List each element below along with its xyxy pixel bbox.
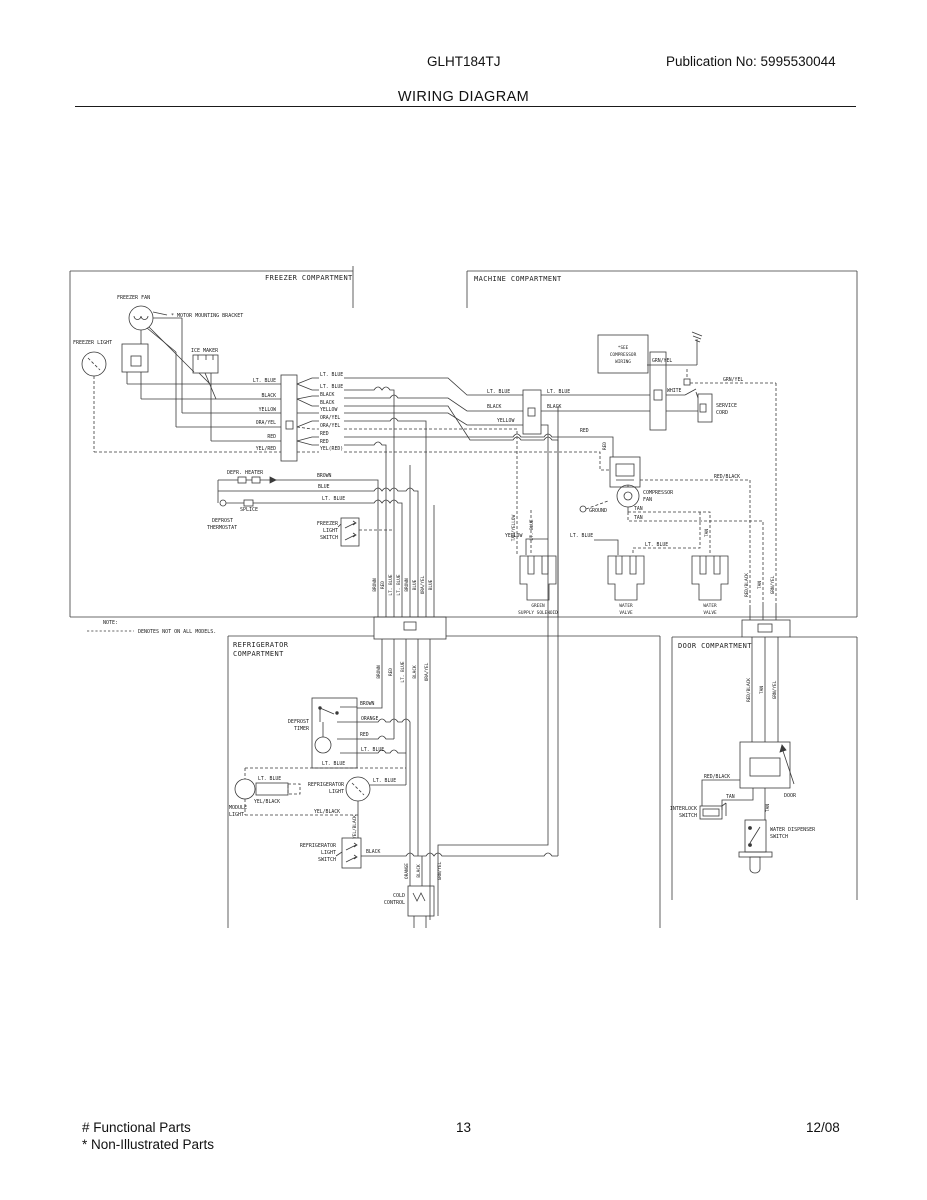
wire-label: BLACK <box>320 392 335 398</box>
wire-label: LT. BLUE <box>487 389 510 395</box>
wire-label: LT. BLUE <box>547 389 570 395</box>
wire-label: GRN/YEL <box>772 680 778 699</box>
wire-label: ORA/YEL <box>420 575 426 594</box>
refrigerator-compartment-label-1: REFRIGERATOR <box>233 641 289 649</box>
defrost-heater-symbol <box>218 477 378 617</box>
wire-label: RED <box>320 431 329 437</box>
refrigerator-connector <box>374 617 446 639</box>
wire-label: LT. BLUE <box>322 496 345 502</box>
wire-label: TAN <box>726 794 735 800</box>
wire-label: ORANGE <box>404 863 410 879</box>
wire-label: YEL/BLACK <box>314 809 340 815</box>
wire-label: RED <box>388 668 394 676</box>
wire-label: ORANGE <box>361 716 378 722</box>
wire-label: RED/BLACK <box>746 678 752 702</box>
wire-label: LT. BLUE <box>373 778 396 784</box>
wire-label: TAN <box>759 686 765 694</box>
wire-label: LT. BLUE <box>320 372 343 378</box>
ice-maker-label: ICE MAKER <box>191 348 219 354</box>
water-dispenser-switch-label-2: SWITCH <box>770 834 788 840</box>
wire-label: LT. BLUE <box>322 761 345 767</box>
wire-label: RED/BLACK <box>704 774 730 780</box>
door-wires <box>702 780 765 820</box>
compressor-fan-label-2: FAN <box>643 497 652 503</box>
wire-label: TAN <box>757 581 763 589</box>
cold-control-label-1: COLD <box>393 893 405 899</box>
defrost-timer-symbol <box>312 698 357 768</box>
freezer-light-label: FREEZER LIGHT <box>73 340 112 346</box>
wire-label: LT. BLUE <box>258 776 281 782</box>
refrigerator-light-switch-symbol <box>336 838 361 868</box>
module-light-label-2: LIGHT <box>229 812 244 818</box>
water-valve-connector-2 <box>692 556 728 600</box>
defrost-thermostat-label-1: DEFROST <box>212 518 233 524</box>
wire-label: BLACK <box>320 400 335 406</box>
wire-label: BLACK <box>262 393 277 399</box>
compressor-fan-label-1: COMPRESSOR <box>643 490 674 496</box>
freezer-light-switch-label-2: LIGHT <box>323 528 338 534</box>
freezer-light-switch-label-1: FREEZER <box>317 521 339 527</box>
footer-non-illustrated-parts: * Non-Illustrated Parts <box>82 1137 214 1152</box>
wire-label: LT. BLUE <box>396 574 402 596</box>
wire-label: GRN/YEL <box>652 358 672 364</box>
splice-label: SPLICE <box>240 507 258 513</box>
service-cord-label-1: SERVICE <box>716 403 737 409</box>
water-valve-connector-1 <box>608 556 644 600</box>
supply-solenoid-label-2: SUPPLY SOLENOID <box>518 610 558 616</box>
wire-label: YELLOW <box>497 418 514 424</box>
freezer-light-symbol <box>82 352 106 452</box>
water-valve-label-1a: WATER <box>619 603 633 609</box>
wire-label: BROWN <box>360 701 375 707</box>
refrigerator-light-label-1: REFRIGERATOR <box>308 782 345 788</box>
wire-label: LT. BLUE <box>529 519 535 541</box>
wire-label: RED/BLACK <box>744 573 750 597</box>
ice-maker-connector <box>193 355 218 441</box>
see-compressor-label-3: WIRING <box>615 359 631 365</box>
wire-label: YEL/RED <box>256 446 276 452</box>
cabinet-connector <box>281 375 297 461</box>
wire-label: TAN/YELLOW <box>511 514 517 541</box>
wire-label: BLUE <box>412 579 418 590</box>
wire-label: YEL/BLACK <box>254 799 280 805</box>
wire-label: YELLOW <box>259 407 276 413</box>
freezer-wires-left <box>94 318 281 452</box>
wire-label: ORA/YEL <box>256 420 276 426</box>
machine-compartment-label: MACHINE COMPARTMENT <box>474 275 562 283</box>
see-compressor-label-2: COMPRESSOR <box>610 352 637 358</box>
wire-label: TAN <box>634 506 643 512</box>
wire-label: TAN <box>634 515 643 521</box>
footer-date: 12/08 <box>806 1120 840 1135</box>
freezer-fan-label: FREEZER FAN <box>117 295 150 301</box>
wire-label: RED <box>602 442 608 450</box>
wire-label: BLACK <box>547 404 562 410</box>
refrigerator-light-switch-label-1: REFRIGERATOR <box>300 843 337 849</box>
wire-label: BROWN <box>376 665 382 679</box>
refrigerator-light-symbol <box>346 777 370 801</box>
bottom-wires <box>361 406 558 916</box>
wire-label: ORA/YEL <box>424 662 430 681</box>
wire-label: BLUE <box>318 484 330 490</box>
wire-label: GRN/YEL <box>723 377 743 383</box>
defrost-thermostat-symbol <box>220 500 253 506</box>
wire-label: RED/BLACK <box>714 474 740 480</box>
wiring-diagram: FREEZER COMPARTMENT MACHINE COMPARTMENT … <box>0 0 927 1000</box>
wire-label: RED <box>360 732 369 738</box>
refrigerator-compartment-label-2: COMPARTMENT <box>233 650 284 658</box>
wire-label: LT. BLUE <box>320 384 343 390</box>
wire-label: ORA/YEL <box>320 415 340 421</box>
defrost-thermostat-label-2: THERMOSTAT <box>207 525 237 531</box>
refrigerator-light-label-2: LIGHT <box>329 789 344 795</box>
wire-label: BROWN <box>317 473 332 479</box>
interlock-switch-label-2: SWITCH <box>679 813 697 819</box>
wire-label: RED <box>580 428 589 434</box>
supply-solenoid-connector <box>520 556 556 600</box>
refrigerator-light-switch-label-3: SWITCH <box>318 857 336 863</box>
manual-page: GLHT184TJ Publication No: 5995530044 WIR… <box>0 0 927 1200</box>
wire-label: LT. BLUE <box>253 378 276 384</box>
wire-label: LT. BLUE <box>570 533 593 539</box>
wire-label: YELLOW <box>320 407 337 413</box>
machine-connector <box>523 390 541 434</box>
defrost-timer-label-2: TIMER <box>294 726 310 732</box>
service-cord-symbol <box>698 394 712 422</box>
wire-label: GRN/YEL <box>437 861 443 880</box>
wire-label: LT. BLUE <box>400 661 406 683</box>
wire-label: BROWN <box>404 578 410 592</box>
door-label: DOOR <box>784 793 797 799</box>
note-text: DENOTES NOT ON ALL MODELS. <box>138 629 216 635</box>
door-ground-strap <box>780 745 794 784</box>
wire-label: RED <box>267 434 276 440</box>
valve-wires <box>526 510 618 555</box>
service-cord-label-2: CORD <box>716 410 728 416</box>
door-compartment-label: DOOR COMPARTMENT <box>678 642 752 650</box>
freezer-light-switch-label-3: SWITCH <box>320 535 338 541</box>
compartment-borders <box>70 266 857 928</box>
door-connector <box>742 605 790 742</box>
wire-label: GRN/YEL <box>770 575 776 594</box>
wire-label: BLACK <box>412 665 418 679</box>
wire-label: LT. BLUE <box>361 747 384 753</box>
note: NOTE: DENOTES NOT ON ALL MODELS. <box>87 620 216 635</box>
water-valve-label-2a: WATER <box>703 603 717 609</box>
wire-label: RED <box>320 439 329 445</box>
defrost-heater-label: DEFR. HEATER <box>227 470 264 476</box>
water-dispenser-switch-symbol <box>739 820 772 873</box>
ground-label: GROUND <box>589 508 607 514</box>
wire-label: LT. BLUE <box>388 574 394 596</box>
water-valve-label-1b: VALVE <box>619 610 633 616</box>
compressor-relay-symbol <box>610 457 640 487</box>
freezer-compartment-label: FREEZER COMPARTMENT <box>265 274 353 282</box>
wire-label: YEL/BLACK <box>352 815 358 839</box>
module-light-label-1: MODULE <box>229 805 247 811</box>
wire-label: WHITE <box>667 388 682 394</box>
interlock-switch-label-1: INTERLOCK <box>670 806 697 812</box>
cold-control-label-2: CONTROL <box>384 900 405 906</box>
wire-label: BROWN <box>372 578 378 592</box>
wire-label: ORA/YEL <box>320 423 340 429</box>
supply-solenoid-label-1: GREEN <box>531 603 545 609</box>
wire-label: RED <box>380 581 386 589</box>
wire-label: BLACK <box>366 849 381 855</box>
wire-label: TAN <box>704 529 710 537</box>
wire-label: LT. BLUE <box>645 542 668 548</box>
water-valve-label-2b: VALVE <box>703 610 717 616</box>
wire-label: TAN <box>765 804 771 812</box>
page-number: 13 <box>0 1120 927 1135</box>
refrigerator-light-switch-label-2: LIGHT <box>321 850 336 856</box>
module-light-symbol <box>235 779 300 799</box>
defrost-timer-label-1: DEFROST <box>288 719 309 725</box>
wire-label: YEL(RED) <box>320 446 343 452</box>
water-dispenser-switch-label-1: WATER DISPENSER <box>770 827 816 833</box>
wire-label: BLACK <box>487 404 502 410</box>
wire-label: BLUE <box>428 579 434 590</box>
see-compressor-label-1: *SEE <box>618 345 629 351</box>
note-heading: NOTE: <box>103 620 118 626</box>
wire-label: BLACK <box>416 864 422 878</box>
